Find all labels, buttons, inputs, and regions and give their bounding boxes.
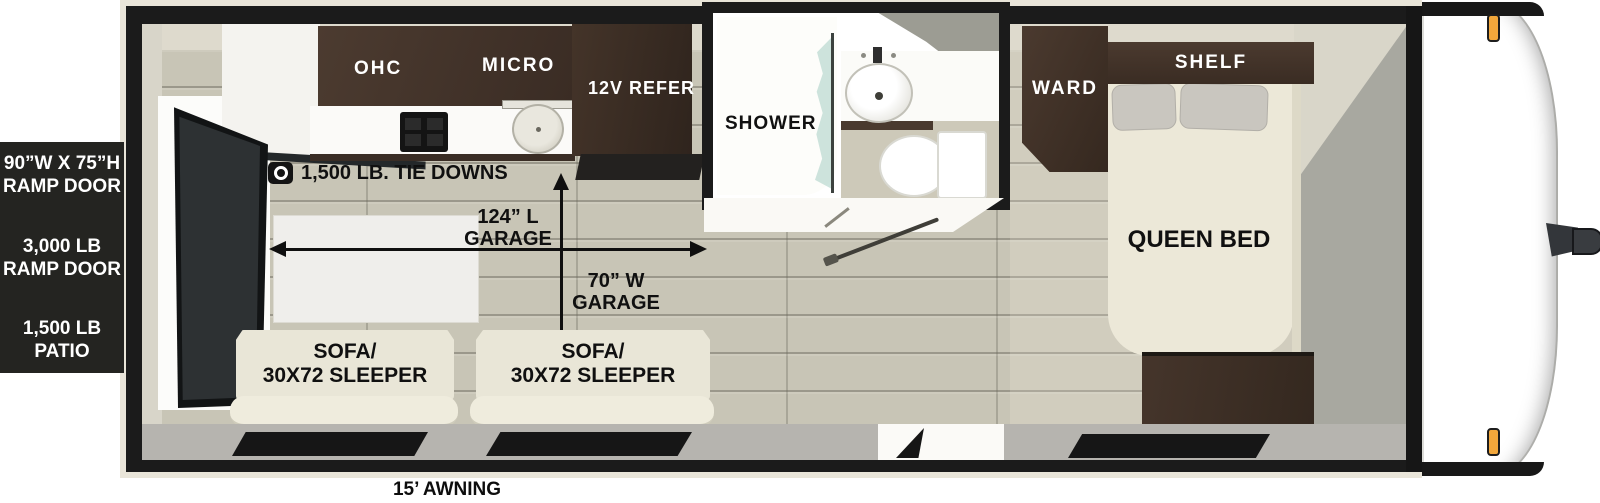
ramp-door-capacity-spec: 3,000 LB RAMP DOOR: [2, 235, 122, 281]
garage-width-word: GARAGE: [572, 292, 660, 314]
sofa-1-seat-edge: [230, 396, 458, 427]
microwave-label: MICRO: [482, 55, 555, 77]
tie-down-label: 1,500 LB. TIE DOWNS: [301, 162, 508, 185]
sofa-1-label-line2: 30X72 SLEEPER: [263, 364, 428, 387]
refrigerator-label: 12V REFER: [588, 78, 695, 99]
sofa-1-label: SOFA/ 30X72 SLEEPER: [236, 340, 454, 388]
faucet-handle-icon: [891, 53, 896, 58]
ramp-door-size-line1: 90”W X 75”H: [2, 152, 122, 175]
pillow: [1179, 82, 1269, 131]
marker-light-icon: [1487, 14, 1500, 42]
ramp-door-capacity-line1: 3,000 LB: [2, 235, 122, 258]
hitch-jack-icon: [1572, 228, 1600, 255]
spec-panel: 90”W X 75”H RAMP DOOR 3,000 LB RAMP DOOR…: [0, 142, 124, 373]
front-cap-trim: [1422, 2, 1544, 16]
ramp-door-capacity-line2: RAMP DOOR: [2, 258, 122, 281]
garage-width-value: 70” W: [588, 270, 645, 292]
patio-capacity-spec: 1,500 LB PATIO: [2, 317, 122, 363]
sofa-2-label: SOFA/ 30X72 SLEEPER: [476, 340, 710, 388]
rv-floorplan-diagram: OHC MICRO 12V REFER 1,500 LB. TIE DOWNS …: [0, 0, 1600, 503]
garage-width-label: 70” W GARAGE: [566, 270, 666, 314]
shower-label: SHOWER: [725, 113, 817, 135]
toilet-tank-icon: [937, 131, 987, 199]
garage-length-value: 124” L: [477, 206, 538, 228]
shelf-label: SHELF: [1108, 52, 1314, 74]
vanity-edge: [841, 121, 933, 130]
window: [1068, 434, 1270, 458]
overhead-cabinet-label: OHC: [354, 58, 402, 80]
ramp-door-size-spec: 90”W X 75”H RAMP DOOR: [2, 152, 122, 198]
sofa-2-seat-edge: [470, 396, 714, 427]
sofa-2-label-line1: SOFA/: [561, 340, 624, 363]
window: [232, 432, 428, 456]
sofa-2-label-line2: 30X72 SLEEPER: [511, 364, 676, 387]
patio-capacity-line2: PATIO: [2, 340, 122, 363]
garage-length-word: GARAGE: [464, 228, 552, 250]
garage-length-label: 124” L GARAGE: [458, 206, 558, 250]
bed-foot-cabinet: [1142, 352, 1314, 432]
front-cap: [1422, 2, 1558, 476]
cooktop-icon: [400, 112, 448, 152]
garage-mat: [274, 216, 478, 322]
marker-light-icon: [1487, 428, 1500, 456]
sofa-1-label-line1: SOFA/: [313, 340, 376, 363]
faucet-handle-icon: [861, 53, 866, 58]
window: [486, 432, 692, 456]
awning-label: 15’ AWNING: [297, 479, 597, 501]
pillow: [1111, 83, 1177, 131]
bed-side-rail: [1292, 84, 1301, 354]
refrigerator-base: [575, 154, 705, 180]
sofa-sleeper-1: SOFA/ 30X72 SLEEPER: [236, 330, 454, 400]
bathroom-outer-wall: [704, 198, 1004, 232]
entry-door-opening: [878, 424, 1004, 460]
patio-capacity-line1: 1,500 LB: [2, 317, 122, 340]
queen-bed-label: QUEEN BED: [1094, 226, 1304, 254]
front-cap-trim: [1422, 462, 1544, 476]
shower-door-track: [831, 33, 834, 193]
ramp-door-size-line2: RAMP DOOR: [2, 175, 122, 198]
bathroom-sink-icon: [845, 63, 913, 123]
bathroom-interior: SHOWER: [713, 13, 999, 199]
tie-down-icon: [268, 162, 293, 184]
faucet-icon: [873, 47, 882, 63]
kitchen-sink-icon: [512, 104, 564, 154]
sofa-sleeper-2: SOFA/ 30X72 SLEEPER: [476, 330, 710, 400]
wardrobe-label: WARD: [1022, 78, 1108, 100]
